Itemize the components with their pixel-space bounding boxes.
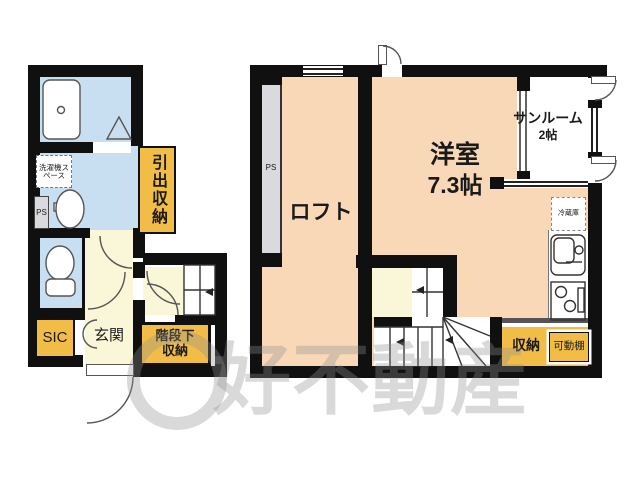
stairs-direction-arrow — [445, 336, 453, 344]
under-stairs-storage-label: 階段下収納 — [151, 326, 199, 362]
sic-label: SIC — [35, 318, 75, 358]
stove-burner — [556, 287, 567, 298]
wash-basin — [56, 190, 84, 228]
western-room-label: 洋室 — [400, 140, 510, 170]
kitchen-sink — [554, 238, 574, 263]
western-room-door-arc — [383, 46, 401, 64]
sunroom-label: サンルーム — [506, 110, 590, 127]
stairs-direction-arrow — [416, 286, 424, 294]
sunroom-size-label: 2帖 — [506, 128, 590, 143]
sunroom-door-arc — [595, 80, 616, 100]
western-room-size-label: 7.3帖 — [400, 172, 510, 200]
entrance-label: 玄関 — [85, 326, 133, 346]
movable-shelf-label: 可動棚 — [550, 337, 588, 357]
loft-label: ロフト — [282, 200, 360, 226]
kitchen-faucet — [575, 246, 583, 254]
ps-label-2f: PS — [263, 162, 279, 174]
stove-burner — [565, 301, 576, 312]
stairs-direction-arrow — [205, 288, 213, 296]
toilet-tank — [46, 279, 75, 296]
ps-label-1f: PS — [34, 198, 49, 228]
storage-label: 収納 — [504, 336, 548, 356]
toilet — [46, 246, 74, 280]
door-arc — [147, 271, 180, 304]
stairs-2f-winder-step — [443, 317, 490, 336]
floorplan-canvas: 洗濯機スペース PS 引出収納 SIC 玄関 階段下収納 PS ロフト 洋室 7… — [0, 0, 640, 480]
door-arc — [88, 272, 125, 309]
entrance-door-arc — [87, 377, 133, 423]
door-arc — [100, 236, 132, 268]
stairs-direction-arrow — [396, 338, 404, 346]
bath-folding-door-icon — [107, 117, 131, 139]
laundry-space-label: 洗濯機スペース — [37, 158, 71, 186]
bathtub — [43, 80, 80, 139]
floorplan-symbols — [0, 0, 640, 480]
refrigerator-label: 冷蔵庫 — [553, 208, 584, 220]
drawer-storage-label: 引出収納 — [140, 150, 174, 230]
stove-grill — [578, 288, 584, 312]
kitchen-sink-unit — [551, 235, 585, 275]
sunroom-door-arc — [595, 160, 616, 181]
